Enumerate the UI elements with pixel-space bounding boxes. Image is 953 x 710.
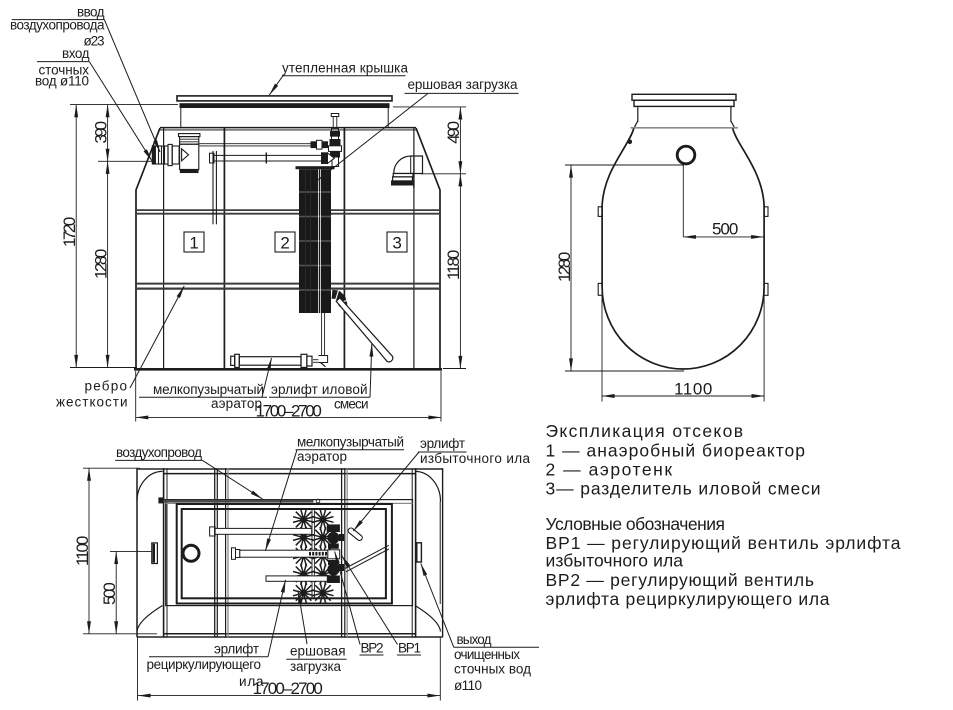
svg-text:жесткости: жесткости: [56, 395, 128, 410]
svg-text:эрлифта рециркулирующего ила: эрлифта рециркулирующего ила: [546, 589, 830, 609]
svg-text:аэратор: аэратор: [297, 449, 347, 464]
svg-text:избыточного ила: избыточного ила: [546, 551, 684, 571]
svg-text:ø110: ø110: [454, 678, 482, 693]
svg-text:1700–2700: 1700–2700: [253, 679, 323, 698]
svg-text:эрлифт иловой: эрлифт иловой: [271, 382, 368, 397]
svg-text:сточных вод: сточных вод: [454, 662, 531, 677]
svg-text:500: 500: [712, 220, 738, 239]
svg-text:воздухопровод: воздухопровод: [116, 445, 202, 460]
svg-text:3: 3: [392, 234, 401, 253]
svg-text:аэратор: аэратор: [211, 396, 262, 411]
svg-text:загрузка: загрузка: [290, 659, 341, 674]
svg-text:1700–2700: 1700–2700: [256, 401, 322, 420]
svg-text:утепленная крышка: утепленная крышка: [282, 61, 408, 76]
svg-text:1280: 1280: [555, 252, 574, 282]
svg-text:Условные обозначения: Условные обозначения: [546, 514, 726, 534]
svg-text:ребро: ребро: [85, 379, 128, 394]
svg-text:1720: 1720: [60, 217, 79, 247]
svg-text:2 — аэротенк: 2 — аэротенк: [546, 460, 673, 480]
svg-text:мелкопузырчатый: мелкопузырчатый: [297, 434, 404, 449]
svg-text:вход: вход: [62, 46, 90, 61]
svg-text:1100: 1100: [73, 536, 92, 566]
svg-text:1 — анаэробный биореактор: 1 — анаэробный биореактор: [546, 441, 806, 461]
svg-text:ВР1: ВР1: [398, 641, 421, 656]
svg-text:3— разделитель иловой смеси: 3— разделитель иловой смеси: [546, 479, 821, 499]
svg-text:вод ø110: вод ø110: [35, 74, 89, 89]
svg-text:490: 490: [444, 121, 463, 144]
svg-text:эрлифт: эрлифт: [214, 642, 259, 657]
svg-text:500: 500: [100, 582, 119, 605]
svg-text:1280: 1280: [91, 249, 110, 279]
svg-text:390: 390: [91, 121, 110, 144]
svg-text:выход: выход: [457, 632, 492, 647]
svg-text:рециркулирующего: рециркулирующего: [147, 657, 262, 672]
svg-text:1100: 1100: [674, 379, 712, 398]
svg-text:мелкопузырчатый: мелкопузырчатый: [153, 382, 264, 397]
svg-text:2: 2: [280, 234, 289, 253]
svg-text:ершовая загрузка: ершовая загрузка: [408, 77, 518, 92]
svg-text:Экспликация отсеков: Экспликация отсеков: [546, 421, 744, 441]
svg-text:ВР2: ВР2: [361, 641, 384, 656]
svg-text:смеси: смеси: [334, 397, 369, 412]
svg-text:эрлифт: эрлифт: [420, 436, 465, 451]
svg-text:ВР2 — регулирующий вентиль: ВР2 — регулирующий вентиль: [546, 570, 815, 590]
svg-text:1180: 1180: [444, 250, 463, 280]
svg-text:очищенных: очищенных: [454, 647, 520, 662]
svg-text:ершовая: ершовая: [290, 643, 346, 658]
svg-text:избыточного ила: избыточного ила: [420, 451, 530, 466]
svg-text:1: 1: [189, 234, 198, 253]
